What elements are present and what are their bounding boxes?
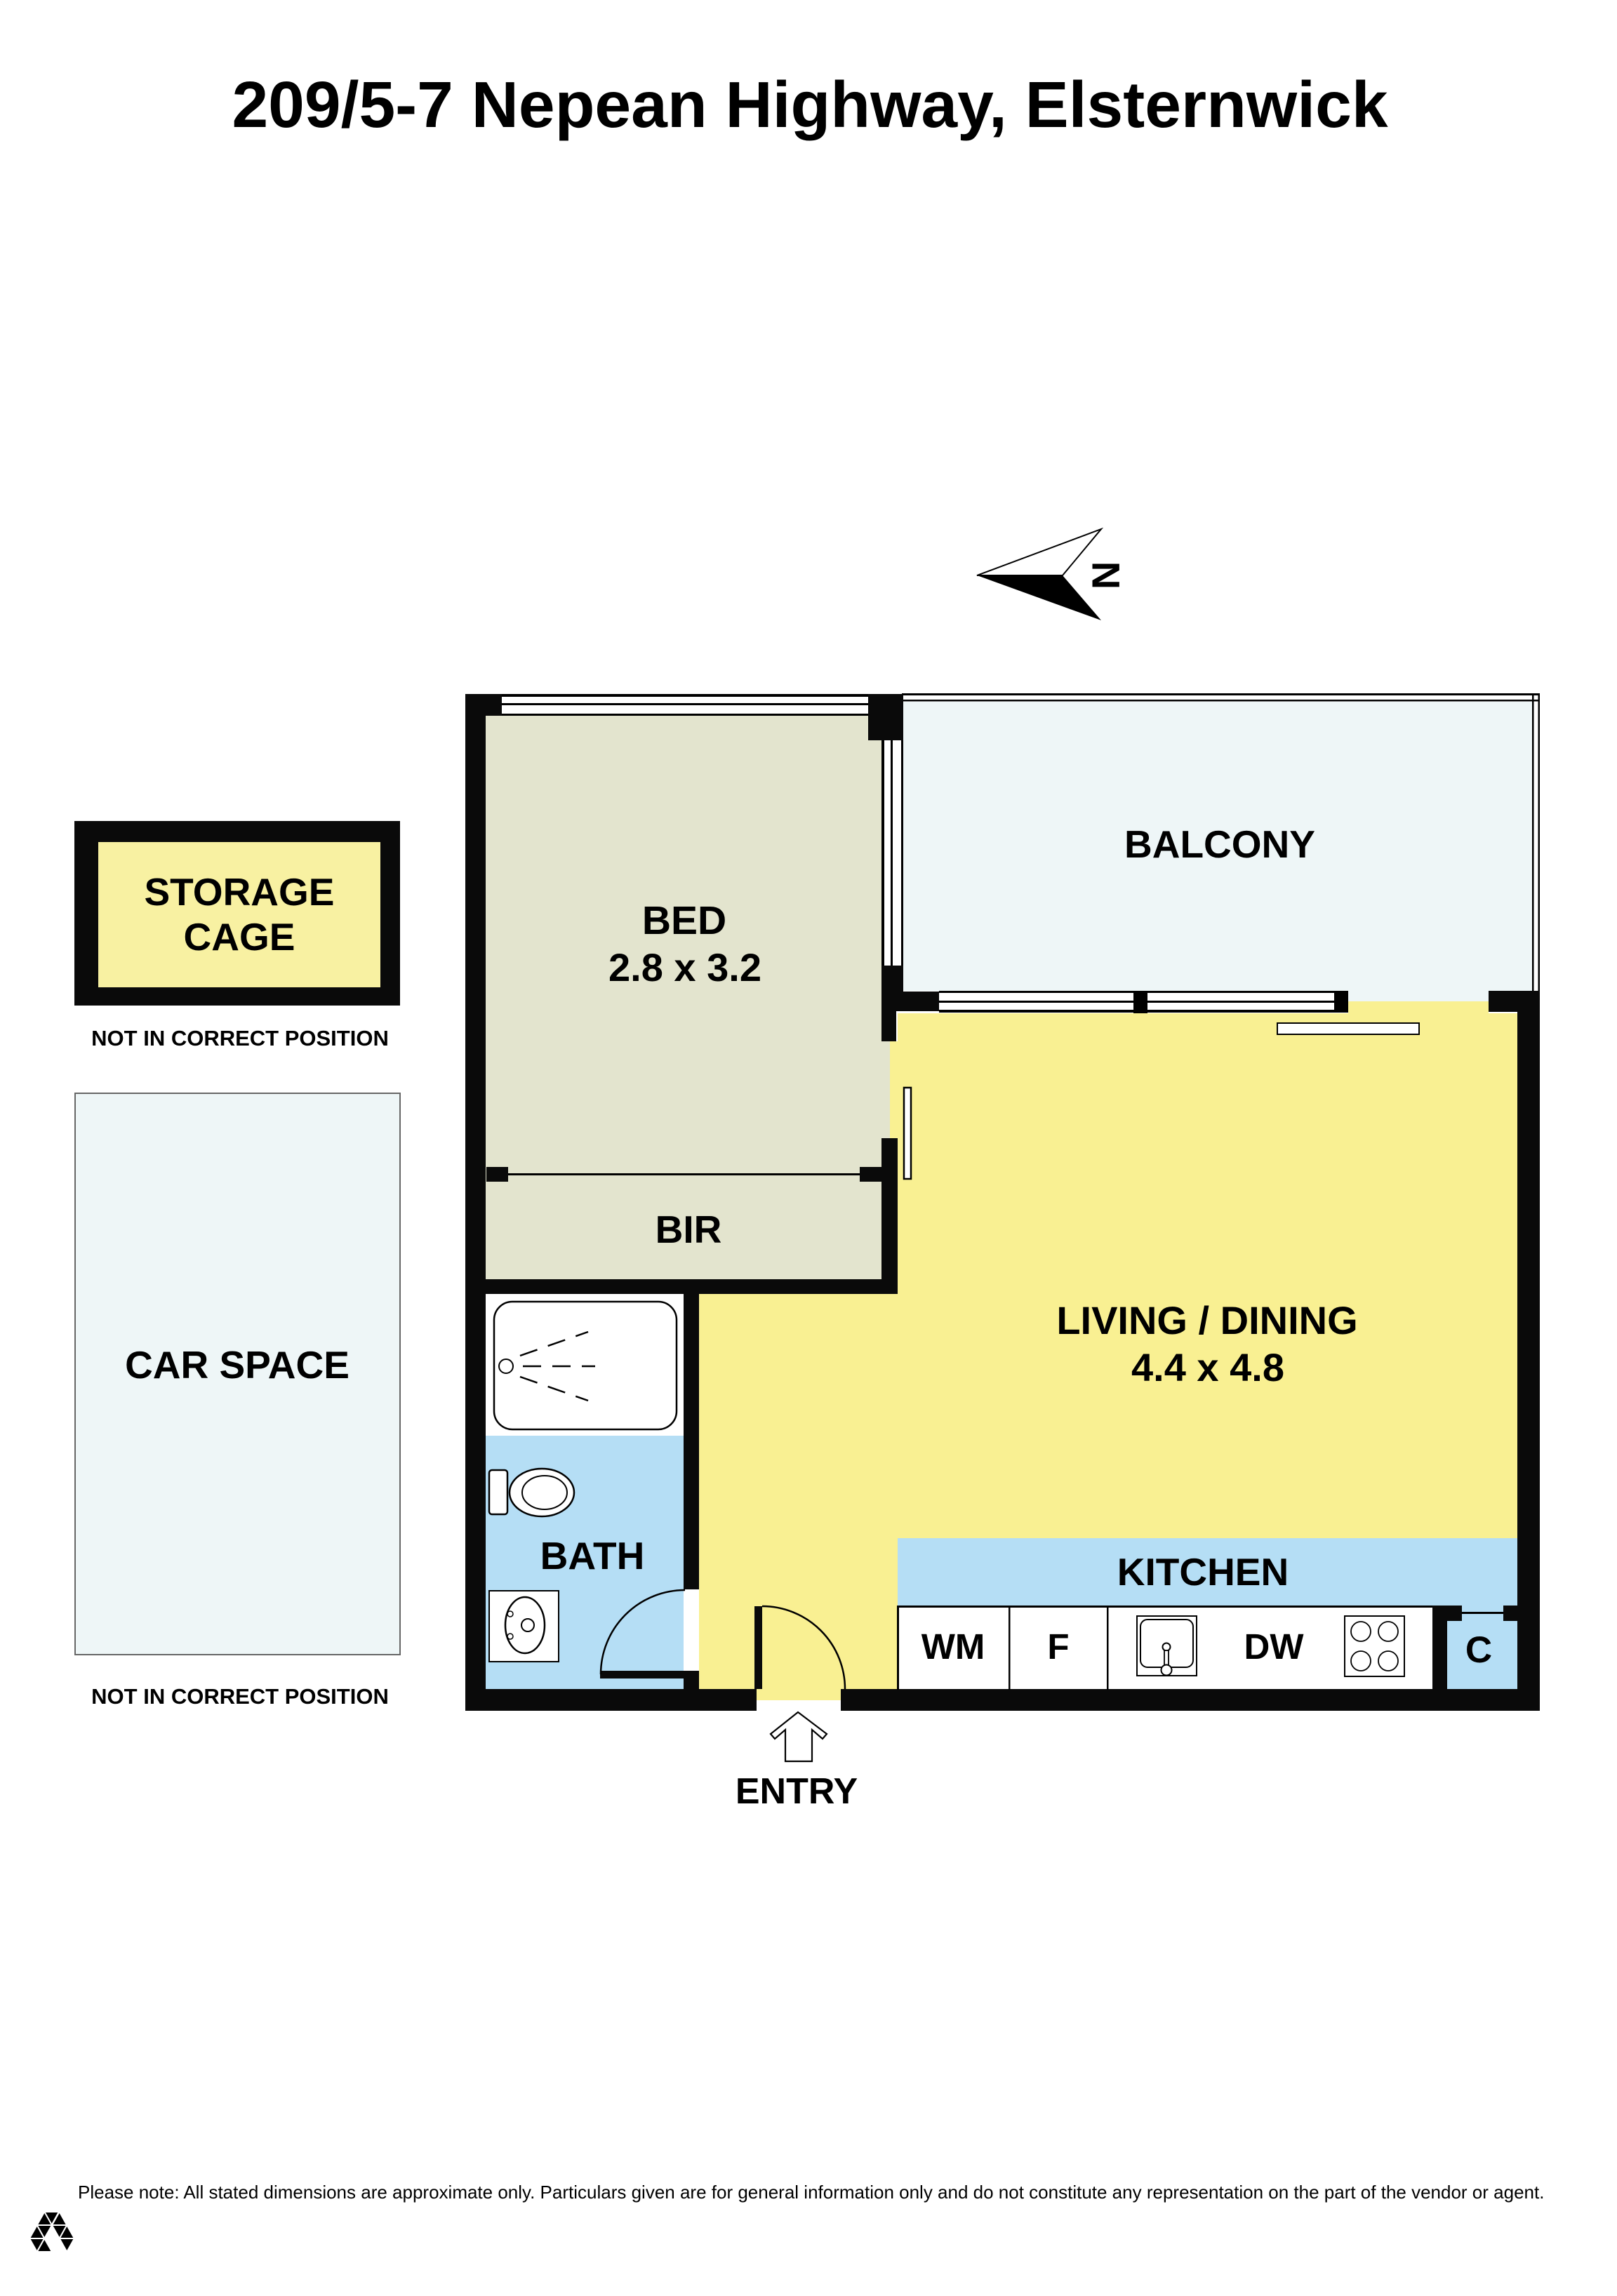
svg-text:LIVING / DINING: LIVING / DINING	[1056, 1298, 1357, 1342]
svg-text:N: N	[1084, 561, 1129, 589]
svg-text:WM: WM	[921, 1627, 985, 1667]
svg-text:Please note: All stated dimens: Please note: All stated dimensions are a…	[78, 2182, 1544, 2203]
svg-text:CAR SPACE: CAR SPACE	[125, 1343, 350, 1387]
svg-text:DW: DW	[1244, 1627, 1305, 1667]
svg-text:4.4 x 4.8: 4.4 x 4.8	[1131, 1345, 1284, 1389]
svg-text:STORAGE: STORAGE	[145, 870, 335, 914]
svg-text:F: F	[1047, 1627, 1069, 1667]
svg-text:BALCONY: BALCONY	[1124, 822, 1315, 866]
svg-text:BIR: BIR	[656, 1208, 722, 1251]
svg-text:NOT IN CORRECT POSITION: NOT IN CORRECT POSITION	[91, 1684, 389, 1709]
svg-text:CAGE: CAGE	[184, 915, 295, 959]
svg-text:NOT IN CORRECT POSITION: NOT IN CORRECT POSITION	[91, 1026, 389, 1050]
svg-text:ENTRY: ENTRY	[736, 1771, 858, 1812]
svg-text:C: C	[1465, 1629, 1492, 1671]
svg-text:2.8 x 3.2: 2.8 x 3.2	[608, 945, 761, 989]
svg-text:209/5-7 Nepean Highway, Elster: 209/5-7 Nepean Highway, Elsternwick	[232, 68, 1388, 141]
svg-text:BED: BED	[642, 898, 726, 943]
svg-text:BATH: BATH	[540, 1534, 645, 1577]
svg-text:KITCHEN: KITCHEN	[1117, 1550, 1289, 1594]
